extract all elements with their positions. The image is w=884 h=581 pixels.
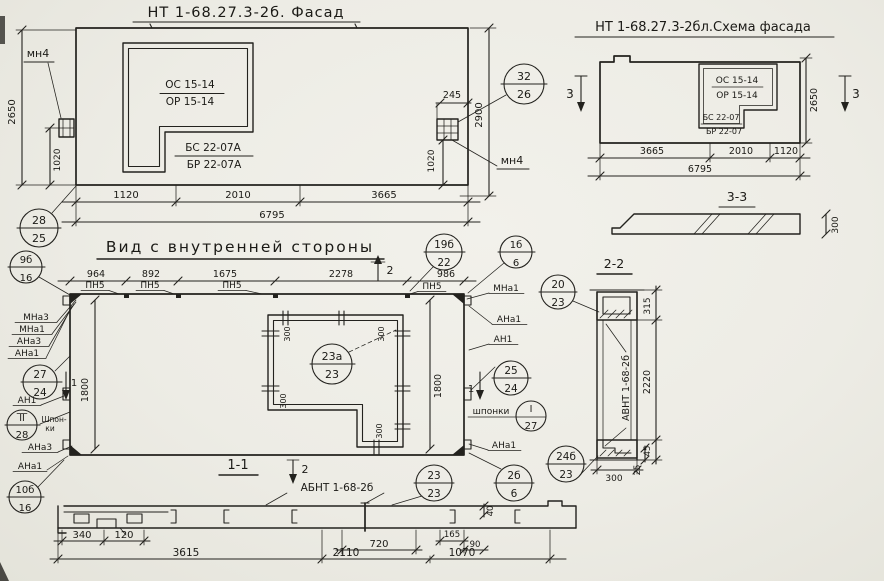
section-mark-3-right: 3 (839, 76, 860, 112)
facade-view: НТ 1-68.27.3-2б. Фасад ОС 15-14 ОР 15-14… (7, 5, 547, 247)
svg-text:АН1: АН1 (494, 335, 513, 345)
svg-text:9б: 9б (20, 255, 33, 266)
svg-text:25: 25 (32, 232, 46, 245)
section-mark-1-right: 1 (468, 372, 484, 400)
facade-window-mark-bottom: ОР 15-14 (166, 96, 215, 108)
facade-title: НТ 1-68.27.3-2б. Фасад (147, 5, 344, 21)
facade-anchor-label-left: мн4 (27, 47, 50, 60)
svg-text:АНа1: АНа1 (15, 349, 39, 359)
schema-title: НТ 1-68.27.3-2бл.Схема фасада (595, 20, 811, 35)
schema-dim-height: 2650 (809, 88, 820, 112)
section-1-1-profile (58, 501, 576, 535)
svg-text:2: 2 (302, 463, 309, 476)
svg-text:2б: 2б (507, 470, 520, 482)
facade-anchor-label-right: мн4 (501, 154, 524, 167)
schema-dim-1120: 1120 (774, 146, 798, 157)
svg-text:23: 23 (325, 368, 339, 381)
inner-ana3-bottom: АНа3 (28, 443, 52, 453)
abnt-label: АБНТ 1-68-2б (301, 482, 374, 494)
callout-9b-16: 9б 16 (8, 251, 70, 295)
avnt-label: АВНТ 1-68-2б (621, 355, 632, 421)
inner-dim-892: 892 (142, 269, 160, 280)
inner-dim-1675: 1675 (213, 269, 237, 280)
section-3-3-dim-300: 300 (831, 216, 841, 233)
facade-dim-anchor-left: 1020 (53, 148, 63, 171)
svg-text:МНа1: МНа1 (19, 325, 45, 335)
svg-text:32: 32 (517, 70, 531, 83)
dim-2110: 2110 (333, 547, 360, 559)
section-2-2-view: 2-2 АВНТ 1-68-2б 20 23 (539, 256, 662, 484)
dim-315: 315 (643, 297, 653, 314)
svg-text:ПН5: ПН5 (140, 281, 159, 291)
svg-text:19б: 19б (434, 239, 454, 251)
inner-dim-964: 964 (87, 269, 105, 280)
svg-text:23: 23 (427, 488, 440, 500)
callout-20-23: 20 23 (539, 275, 599, 312)
svg-text:МНа3: МНа3 (23, 313, 49, 323)
inner-dim-1800-right: 1800 (433, 374, 444, 398)
inner-dim-300-c: 300 (279, 393, 288, 408)
inner-view: Вид с внутренней стороны 964 892 1675 22… (5, 234, 546, 514)
dim-2220: 2220 (642, 370, 653, 394)
blueprint-page: НТ 1-68.27.3-2б. Фасад ОС 15-14 ОР 15-14… (0, 0, 884, 581)
facade-dim-245: 245 (443, 90, 461, 101)
svg-text:ПН5: ПН5 (222, 281, 241, 291)
callout-28-25: 28 25 (17, 186, 76, 247)
svg-text:26: 26 (517, 88, 531, 101)
section-3-3-title: 3-3 (727, 189, 747, 204)
svg-text:10б: 10б (16, 485, 35, 496)
svg-text:16: 16 (20, 273, 33, 284)
dim-300-bottom: 300 (605, 474, 622, 484)
section-mark-3-left: 3 (566, 76, 587, 112)
svg-text:23а: 23а (322, 350, 343, 363)
pn5-labels: ПН5 ПН5 ПН5 ПН5 (81, 281, 446, 294)
inner-edge-anchors (63, 294, 471, 455)
svg-text:27: 27 (33, 369, 46, 381)
schema-dim-3665: 3665 (640, 146, 664, 157)
svg-text:1: 1 (468, 384, 474, 395)
svg-text:ПН5: ПН5 (422, 282, 441, 292)
svg-text:6: 6 (511, 488, 518, 500)
facade-anchor-right (437, 119, 458, 140)
callout-32-26: 32 26 (458, 64, 547, 122)
dim-165: 165 (444, 530, 460, 540)
inner-dim-300-b: 300 (377, 326, 386, 341)
schema-dim-2010: 2010 (729, 146, 753, 157)
inner-dim-300-a: 300 (283, 326, 292, 341)
inner-panel-outline (70, 294, 464, 455)
schema-view: НТ 1-68.27.3-2бл.Схема фасада ОС 15-14 О… (566, 20, 860, 238)
svg-text:28: 28 (16, 430, 29, 441)
inner-right-labels: МНа1 АНа1 АН1 (467, 284, 527, 350)
facade-dim-anchor-right: 1020 (427, 149, 437, 172)
section-1-1-label: 1-1 (227, 458, 248, 473)
callout-24b-23: 24б 23 (546, 446, 598, 482)
schema-sill-mark-bottom: БР 22-07 (706, 127, 742, 136)
svg-text:25: 25 (504, 365, 517, 377)
svg-text:АНа1: АНа1 (497, 315, 521, 325)
dim-1070: 1070 (449, 547, 476, 559)
dim-720: 720 (369, 539, 388, 550)
dim-3615: 3615 (173, 547, 200, 559)
section-2-2-title: 2-2 (604, 256, 624, 271)
inner-dim-2278: 2278 (329, 269, 353, 280)
svg-text:1б: 1б (510, 240, 523, 251)
section-1-1-view: 2 АБНТ 1-68-2б 23 23 2б 6 340 120 (50, 453, 576, 563)
inner-shponki-right: шпонки (473, 407, 510, 417)
svg-text:23: 23 (559, 469, 572, 481)
svg-text:20: 20 (551, 279, 564, 291)
svg-text:22: 22 (437, 257, 450, 269)
schema-dim-total: 6795 (688, 164, 712, 175)
schema-window-mark-top: ОС 15-14 (716, 76, 759, 86)
inner-dim-300-d: 300 (375, 423, 384, 438)
svg-text:23: 23 (427, 470, 440, 482)
inner-dim-1800-left: 1800 (80, 378, 91, 402)
facade-panel-outline (76, 28, 468, 185)
schema-panel-outline (600, 56, 800, 143)
facade-sill-mark-bottom: БР 22-07А (187, 159, 242, 171)
svg-text:28: 28 (32, 214, 46, 227)
svg-text:ПН5: ПН5 (85, 281, 104, 291)
inner-an1-left: АН1 (18, 396, 37, 406)
inner-left-labels: МНа3 МНа1 АНа3 АНа1 (8, 300, 76, 359)
section-3-3-profile (612, 214, 800, 234)
inner-ana1-bottom-right: АНа1 (492, 441, 516, 451)
section-mark-2-bottom: 2 (287, 460, 309, 484)
svg-text:II: II (19, 413, 25, 424)
inner-shponki-left-1: Шпон- (41, 415, 66, 424)
callout-2b-6: 2б 6 (469, 453, 534, 501)
inner-ana1-bottom: АНа1 (18, 462, 42, 472)
dim-40: 40 (486, 506, 496, 517)
svg-text:24: 24 (504, 383, 518, 395)
facade-dim-1120: 1120 (113, 190, 138, 201)
dim-340: 340 (72, 530, 91, 541)
facade-dim-3665: 3665 (371, 190, 396, 201)
svg-text:I: I (530, 404, 533, 415)
svg-text:МНа1: МНа1 (493, 284, 519, 294)
schema-sill-mark-top: БС 22-07 (703, 113, 740, 122)
facade-dim-total: 6795 (259, 210, 284, 221)
section-2-2-profile (590, 290, 644, 460)
blueprint-canvas: НТ 1-68.27.3-2б. Фасад ОС 15-14 ОР 15-14… (0, 0, 884, 581)
svg-text:3: 3 (852, 87, 860, 101)
facade-dim-height-right: 2900 (474, 102, 485, 127)
facade-dim-height-left: 2650 (7, 99, 18, 124)
inner-dim-986: 986 (437, 269, 455, 280)
inner-title: Вид с внутренней стороны (106, 238, 374, 256)
svg-text:16: 16 (19, 503, 32, 514)
dim-120: 120 (114, 530, 133, 541)
svg-text:23: 23 (551, 297, 564, 309)
schema-window-mark-bottom: ОР 15-14 (716, 91, 758, 101)
facade-window-mark-top: ОС 15-14 (165, 79, 215, 91)
callout-23-23: 23 23 (392, 465, 454, 505)
svg-text:24б: 24б (556, 451, 576, 463)
section-1-1-dims: 340 120 720 165 90 40 3615 (50, 502, 566, 563)
svg-text:3: 3 (566, 87, 574, 101)
svg-text:АНа3: АНа3 (17, 337, 41, 347)
facade-dim-2010: 2010 (225, 190, 250, 201)
facade-anchor-left (59, 119, 74, 137)
facade-sill-mark-top: БС 22-07А (185, 142, 241, 154)
callout-I-27: I 27 (516, 401, 546, 432)
svg-text:27: 27 (525, 421, 538, 432)
svg-text:2: 2 (387, 264, 394, 277)
svg-text:6: 6 (513, 258, 519, 269)
inner-shponki-left-2: ки (45, 424, 55, 433)
svg-text:1: 1 (71, 378, 77, 389)
